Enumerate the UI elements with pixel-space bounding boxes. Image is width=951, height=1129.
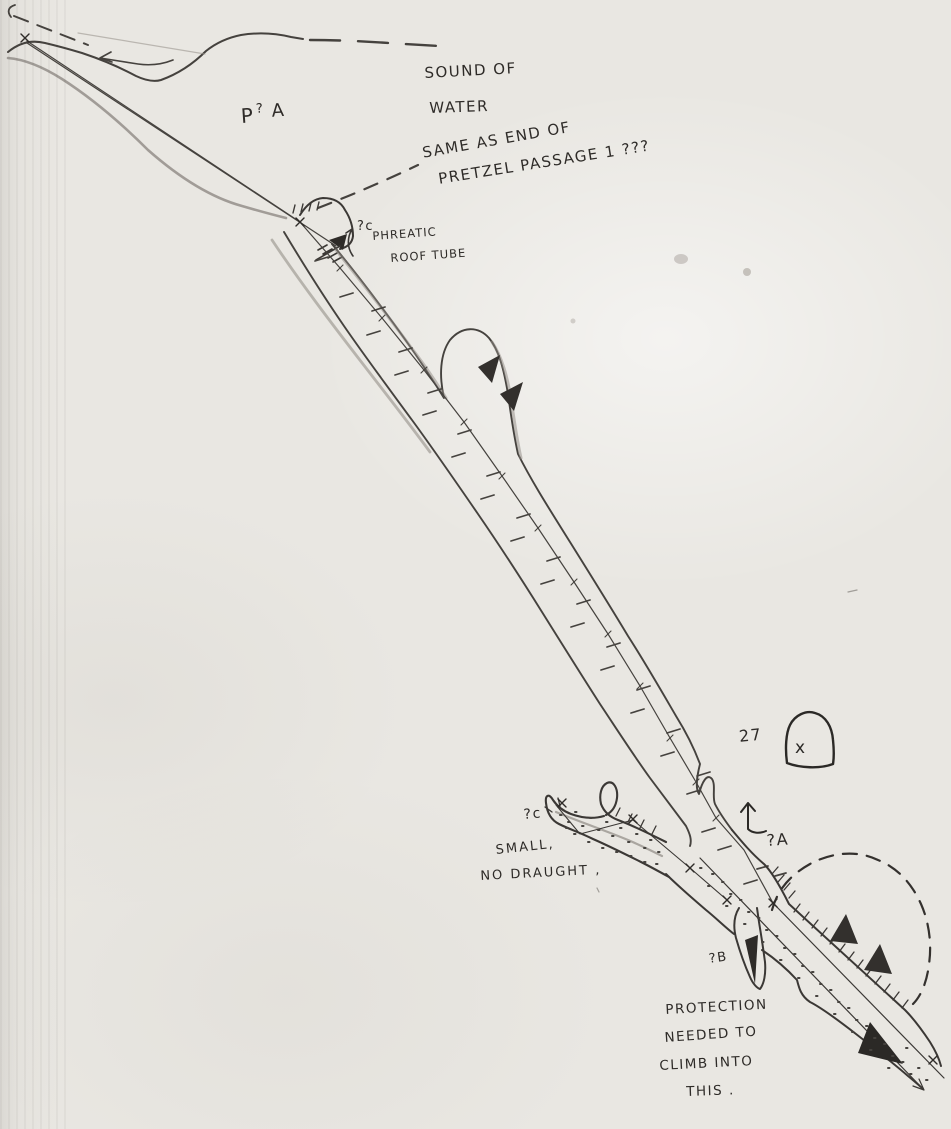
label-p-query-a: P?A [240, 101, 286, 128]
draught-arrow-icon [741, 803, 766, 833]
side-passage-survey [556, 805, 727, 900]
scanned-survey-sketch-page: x [0, 0, 951, 1129]
upper-left-dashed-line [14, 16, 88, 45]
upper-junction [293, 198, 353, 262]
cross-section-dome: x [786, 712, 834, 767]
dome-x-label: x [795, 738, 805, 758]
side-passage-inner-wall [556, 812, 662, 856]
surface-lines [8, 5, 440, 246]
smudge-dot-small [571, 319, 576, 324]
smudge-spot [674, 254, 688, 264]
label-qc-lower: ?c [523, 805, 542, 823]
dashed-chamber [772, 854, 930, 1004]
label-27: 27 [738, 725, 763, 746]
label-p-query: ? [255, 101, 264, 117]
survey-leg-upper-2 [27, 43, 336, 246]
bulge-slope-arrow-icon-1 [478, 355, 500, 383]
bulge-slope-arrow-icon-2 [500, 382, 523, 411]
side-passage-lower [545, 782, 727, 900]
note-water: WATER [429, 97, 489, 117]
survey-station-ticks [337, 265, 719, 821]
dome-outline [786, 712, 834, 767]
label-a: A [271, 100, 286, 122]
label-qa: ?A [766, 829, 790, 850]
faint-surface-line [78, 33, 205, 54]
label-qb: ?B [708, 949, 729, 966]
upper-passage [272, 222, 786, 903]
surface-dashed-continuation [310, 40, 440, 46]
entrance-wall-soft [8, 58, 286, 218]
note-protection-4: THIS . [686, 1082, 735, 1100]
chamber-slope-arrow-icon-1 [830, 914, 858, 944]
survey-station-x-marks [21, 34, 937, 1064]
west-wall [284, 232, 691, 846]
dashed-link-to-note [318, 165, 418, 208]
west-wall-outer-soft [272, 240, 430, 452]
survey-centerline [300, 222, 773, 903]
label-p: P [240, 103, 255, 128]
floor-slope-dashes [315, 257, 786, 884]
chamber-slope-arrow-icon-2 [864, 944, 892, 974]
smudge-dot [743, 268, 751, 276]
lower-passage [560, 812, 944, 1090]
climb-stub-arrow-icon [745, 935, 758, 984]
